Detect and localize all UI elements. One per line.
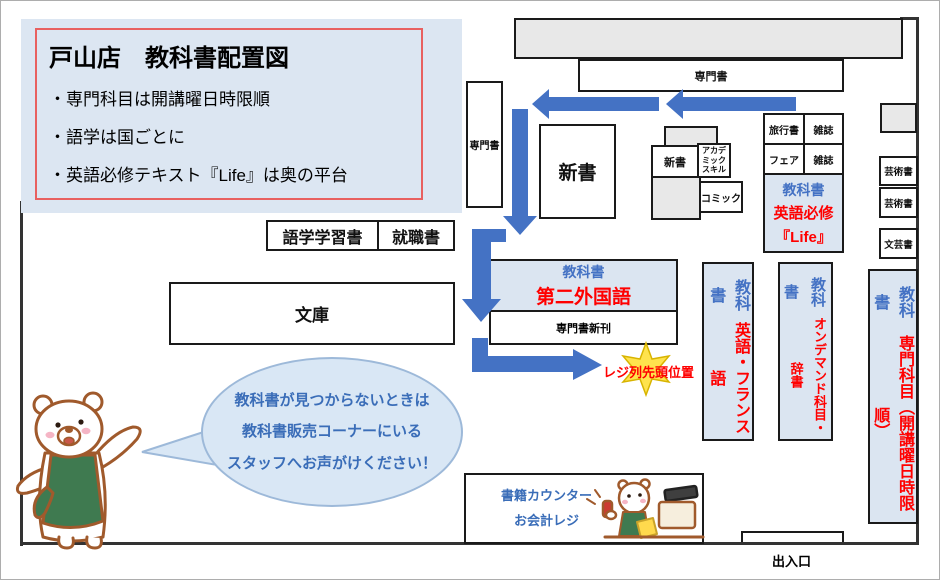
shelf-shushoku: 就職書 <box>377 220 455 251</box>
shelf-senmonsho-left: 専門書 <box>466 81 503 208</box>
second-foreign-heading: 教科書 <box>563 262 605 282</box>
area-textbook-english-french: 教科書英語・フランス語 <box>702 262 754 441</box>
shelf-art-2: 芸術書 <box>879 187 918 218</box>
title-bullet: ・英語必修テキスト『Life』は奥の平台 <box>49 161 409 186</box>
shelf-bunko: 文庫 <box>169 282 455 345</box>
title-bullet: ・専門科目は開講曜日時限順 <box>49 85 409 110</box>
textbook-life-line1: 英語必修 <box>773 202 833 223</box>
area-textbook-second-foreign: 教科書 第二外国語 専門書新刊 <box>489 259 678 345</box>
entrance-door <box>741 531 844 542</box>
bear-mascot <box>11 389 186 551</box>
second-foreign-upper: 教科書 第二外国語 <box>491 261 676 312</box>
shelf-unlabeled-small-bottom <box>651 176 701 220</box>
shelf-shinsho-small: 新書 <box>651 145 699 178</box>
shelf-comic: コミック <box>699 181 743 213</box>
speech-bubble: 教科書が見つからないときは 教科書販売コーナーにいる スタッフへお声がけください… <box>201 357 463 507</box>
title-bullet: ・語学は国ごとに <box>49 123 409 148</box>
second-foreign-sub: 専門書新刊 <box>491 312 676 343</box>
area-textbook-major-subjects: 教科書専門科目（開講曜日時限順） <box>868 269 918 524</box>
shelf-bungei: 文芸書 <box>879 228 918 259</box>
store-floor-map: 戸山店 教科書配置図 ・専門科目は開講曜日時限順 ・語学は国ごとに ・英語必修テ… <box>0 0 940 580</box>
area-textbook-life: 教科書 英語必修 『Life』 <box>763 173 844 253</box>
shelf-unlabeled-right <box>880 103 917 133</box>
second-foreign-body: 第二外国語 <box>536 282 631 309</box>
title-panel: 戸山店 教科書配置図 ・専門科目は開講曜日時限順 ・語学は国ごとに ・英語必修テ… <box>21 19 462 213</box>
cashier-bear <box>579 474 707 544</box>
textbook-life-heading: 教科書 <box>783 180 825 200</box>
arrow-down-main <box>503 109 537 235</box>
shelf-magazine-1: 雑誌 <box>803 113 844 145</box>
shelf-unlabeled-top <box>514 18 903 59</box>
arrow-left-upper-left <box>532 89 659 119</box>
shelf-academic-skill: アカデミックスキル <box>697 143 731 178</box>
bubble-line: 教科書が見つからないときは <box>234 385 429 417</box>
shelf-gogaku: 語学学習書 <box>266 220 379 251</box>
shelf-art-1: 芸術書 <box>879 156 918 186</box>
shelf-magazine-2: 雑誌 <box>803 143 844 175</box>
shelf-fair: フェア <box>763 143 805 175</box>
shelf-travel: 旅行書 <box>763 113 805 145</box>
shelf-senmonsho-top: 専門書 <box>578 59 844 92</box>
bubble-line: スタッフへお声がけください！ <box>227 448 437 480</box>
shelf-shinsho-large: 新書 <box>539 124 616 219</box>
register-queue-label: レジ列先頭位置 <box>603 362 694 381</box>
title-panel-frame: 戸山店 教科書配置図 ・専門科目は開講曜日時限順 ・語学は国ごとに ・英語必修テ… <box>35 28 423 200</box>
textbook-life-line2: 『Life』 <box>775 226 832 247</box>
entrance-label: 出入口 <box>772 551 811 570</box>
page-title: 戸山店 教科書配置図 <box>49 38 409 73</box>
area-textbook-on-demand: 教科書オンデマンド科目・辞書 <box>778 262 833 441</box>
bubble-line: 教科書販売コーナーにいる <box>242 416 422 448</box>
